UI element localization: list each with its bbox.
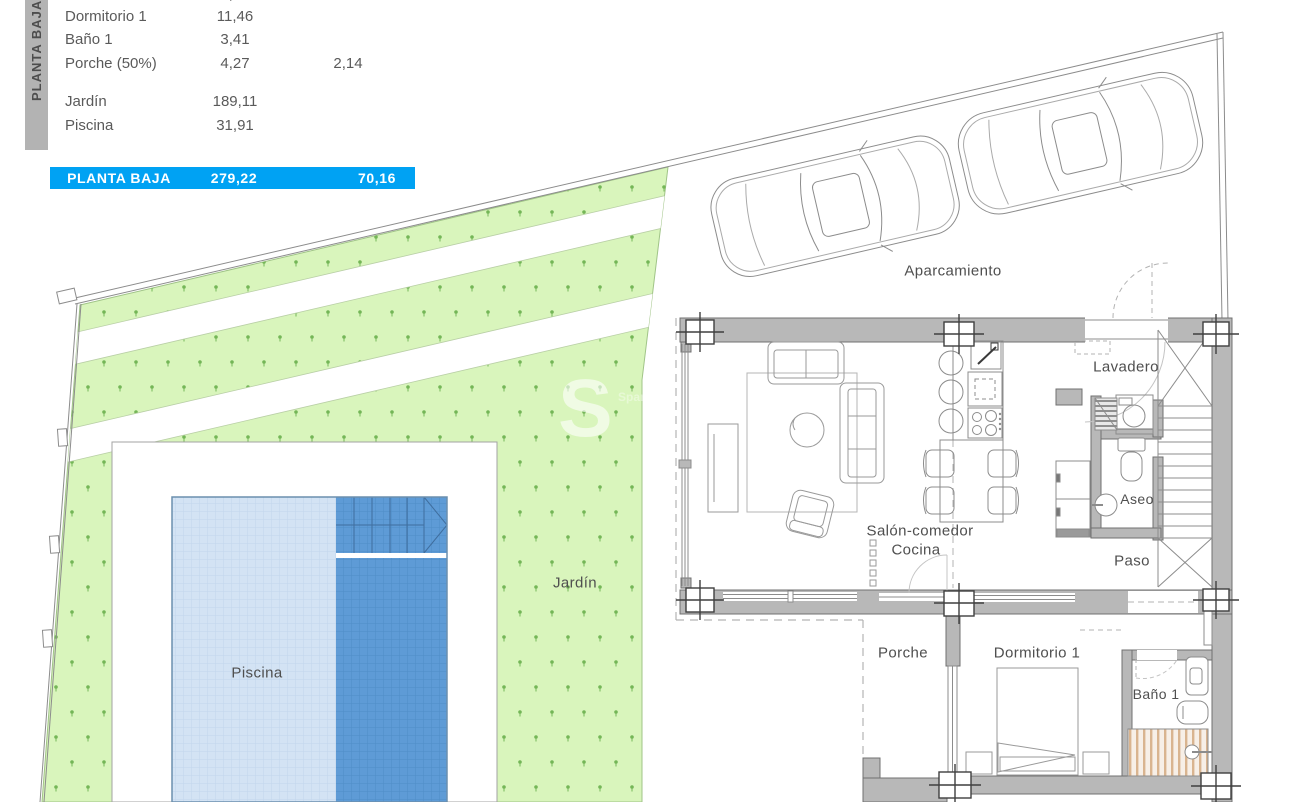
total-label: PLANTA BAJA	[50, 170, 188, 186]
kitchen	[924, 341, 1091, 537]
table-row-porche: Porche (50%) 4,27 2,14	[0, 55, 440, 77]
row-m2: 11,46	[190, 8, 280, 25]
row-label: Piscina	[65, 117, 113, 134]
row-m2: 1,50	[190, 0, 280, 3]
total-m2-secondary: 70,16	[332, 170, 422, 186]
row-label: Porche (50%)	[65, 55, 157, 72]
staircase	[1158, 330, 1212, 587]
stair-treads	[1158, 406, 1212, 538]
label-bano1: Baño 1	[1133, 686, 1180, 702]
label-paso: Paso	[1114, 553, 1150, 570]
label-jardin: Jardín	[553, 575, 597, 592]
table-row-aseo: Aseo 1,50	[0, 0, 440, 8]
label-aparcamiento: Aparcamiento	[904, 263, 1001, 280]
pool	[172, 497, 447, 802]
floor-plan-page: Aparcamiento Lavadero Salón-comedor Coci…	[0, 0, 1315, 802]
watermark-text: Span	[618, 390, 647, 404]
bath1-fixtures	[1128, 657, 1212, 776]
dining-chairs	[924, 450, 1019, 514]
row-m2-secondary: 2,14	[303, 55, 393, 72]
row-label: Jardín	[65, 93, 107, 110]
label-piscina: Piscina	[231, 665, 282, 682]
table-row-bano1: Baño 1 3,41	[0, 31, 440, 53]
table-row-piscina: Piscina 31,91	[0, 117, 440, 139]
label-aseo: Aseo	[1120, 491, 1154, 507]
row-label: Baño 1	[65, 31, 113, 48]
laundry-fixtures	[1095, 395, 1153, 434]
row-label: Aseo	[65, 0, 99, 3]
table-row-dormitorio1: Dormitorio 1 11,46	[0, 8, 440, 30]
area-summary-table: PLANTA BAJA Aseo 1,50 Dormitorio 1 11,46…	[0, 0, 440, 200]
watermark-logo: S	[558, 368, 613, 450]
row-m2: 31,91	[190, 117, 280, 134]
living-room-furniture	[708, 342, 884, 539]
armchair	[785, 489, 836, 540]
label-dormitorio1: Dormitorio 1	[994, 645, 1081, 662]
label-cocina: Cocina	[891, 542, 940, 559]
label-lavadero: Lavadero	[1093, 359, 1159, 376]
label-salon-comedor: Salón-comedor	[867, 523, 974, 540]
label-porche: Porche	[878, 645, 928, 662]
row-label: Dormitorio 1	[65, 8, 147, 25]
table-total-row: PLANTA BAJA 279,22 70,16	[50, 167, 415, 189]
row-m2: 189,11	[190, 93, 280, 110]
row-m2: 3,41	[190, 31, 280, 48]
car-right-icon	[950, 59, 1210, 226]
table-row-jardin: Jardín 189,11	[0, 93, 440, 115]
total-m2: 279,22	[188, 170, 280, 186]
row-m2: 4,27	[190, 55, 280, 72]
